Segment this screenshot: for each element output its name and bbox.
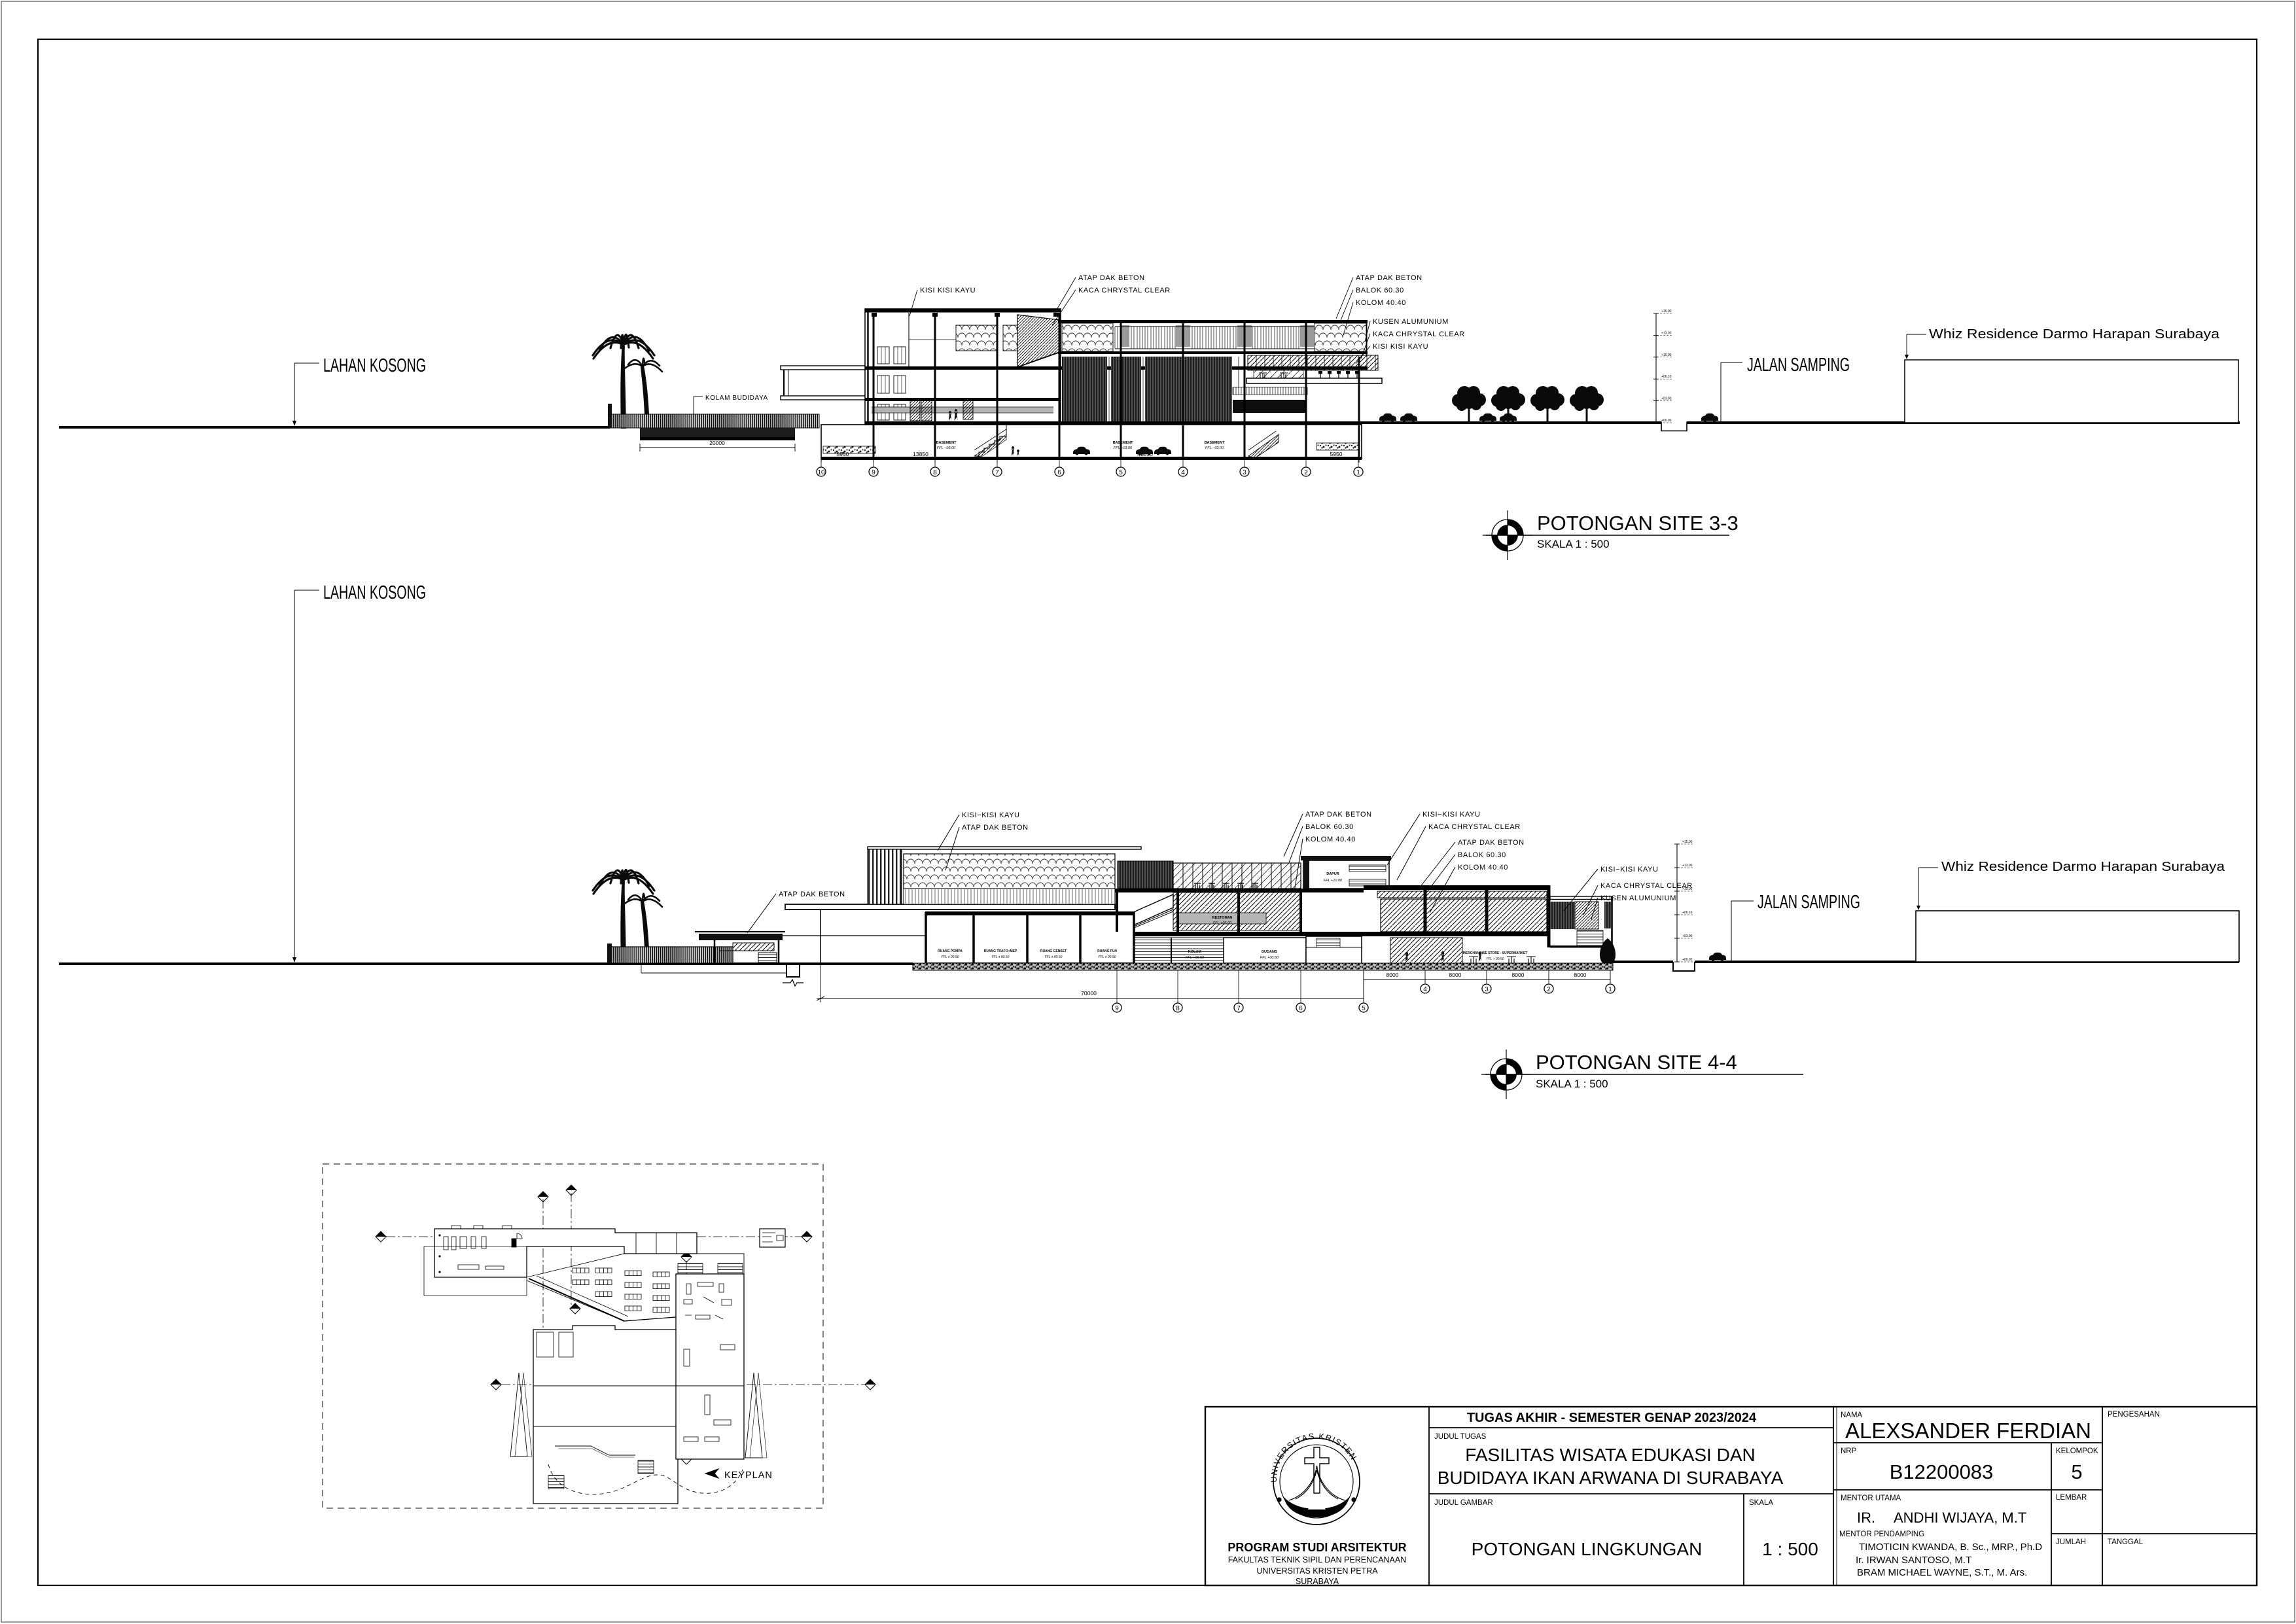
- svg-text:+10.00: +10.00: [1661, 353, 1672, 357]
- svg-text:UNIVERSITAS KRISTEN PETRA: UNIVERSITAS KRISTEN PETRA: [1256, 1566, 1378, 1576]
- svg-text:B12200083: B12200083: [1890, 1460, 1994, 1483]
- svg-text:BASEMENT: BASEMENT: [936, 441, 957, 445]
- svg-text:KISI−KISI KAYU: KISI−KISI KAYU: [962, 811, 1020, 819]
- svg-text:8000: 8000: [1574, 972, 1587, 978]
- svg-text:KACA CHRYSTAL CLEAR: KACA CHRYSTAL CLEAR: [1428, 823, 1521, 831]
- svg-text:+06.10: +06.10: [1661, 375, 1672, 379]
- svg-text:FFL ± 00.50: FFL ± 00.50: [1099, 955, 1116, 959]
- svg-text:Ir. IRWAN SANTOSO, M.T: Ir. IRWAN SANTOSO, M.T: [1856, 1555, 1971, 1566]
- svg-text:5950: 5950: [837, 451, 849, 457]
- svg-text:RUANG GENSET: RUANG GENSET: [1040, 949, 1067, 953]
- svg-text:SKALA 1 : 500: SKALA 1 : 500: [1536, 1078, 1608, 1090]
- svg-text:5: 5: [1362, 1005, 1366, 1012]
- svg-text:FFL ± 00.50: FFL ± 00.50: [992, 955, 1010, 959]
- svg-text:MERCHANDISE STORE - SUPERMARKE: MERCHANDISE STORE - SUPERMARKET: [1463, 951, 1528, 955]
- svg-text:8000: 8000: [1512, 972, 1525, 978]
- svg-text:Whiz Residence Darmo Harapan S: Whiz Residence Darmo Harapan Surabaya: [1941, 860, 2225, 874]
- svg-text:BUDIDAYA IKAN ARWANA DI SURABA: BUDIDAYA IKAN ARWANA DI SURABAYA: [1438, 1468, 1784, 1488]
- svg-text:MENTOR UTAMA: MENTOR UTAMA: [1841, 1494, 1901, 1502]
- svg-text:5950: 5950: [1330, 451, 1343, 457]
- svg-text:PENGESAHAN: PENGESAHAN: [2108, 1411, 2160, 1419]
- svg-text:+00.00: +00.00: [1682, 958, 1693, 962]
- svg-text:8: 8: [933, 469, 937, 476]
- svg-text:6: 6: [1057, 469, 1061, 476]
- svg-text:PROGRAM STUDI ARSITEKTUR: PROGRAM STUDI ARSITEKTUR: [1227, 1541, 1406, 1554]
- svg-text:FFL −03.00: FFL −03.00: [1205, 446, 1224, 450]
- svg-text:LAHAN KOSONG: LAHAN KOSONG: [323, 582, 426, 603]
- svg-text:4: 4: [1181, 469, 1185, 476]
- svg-text:KOLOM 40.40: KOLOM 40.40: [1305, 836, 1356, 843]
- svg-text:LAHAN KOSONG: LAHAN KOSONG: [323, 355, 426, 376]
- svg-text:+10.00: +10.00: [1682, 887, 1693, 891]
- svg-text:BASEMENT: BASEMENT: [1113, 441, 1134, 445]
- svg-text:JUMLAH: JUMLAH: [2056, 1538, 2086, 1546]
- svg-text:8000: 8000: [1449, 972, 1462, 978]
- svg-text:KELOMPOK: KELOMPOK: [2056, 1447, 2098, 1455]
- svg-text:FFL +05.00: FFL +05.00: [1213, 921, 1232, 925]
- svg-text:4: 4: [1423, 986, 1427, 993]
- svg-text:RESTORAN: RESTORAN: [1212, 916, 1233, 920]
- svg-text:BALOK 60.30: BALOK 60.30: [1305, 823, 1354, 831]
- svg-text:+00.00: +00.00: [1661, 419, 1672, 423]
- svg-text:10: 10: [817, 469, 825, 476]
- svg-text:1: 1: [1356, 469, 1360, 476]
- svg-text:JUDUL GAMBAR: JUDUL GAMBAR: [1434, 1499, 1493, 1507]
- svg-text:DAPUR: DAPUR: [1326, 872, 1339, 876]
- svg-text:+15.00: +15.00: [1682, 840, 1693, 844]
- svg-text:+06.10: +06.10: [1682, 911, 1693, 915]
- svg-text:ATAP DAK BETON: ATAP DAK BETON: [1305, 811, 1372, 819]
- svg-text:LEMBAR: LEMBAR: [2056, 1494, 2087, 1502]
- svg-text:FFL +00.50: FFL +00.50: [1260, 956, 1279, 960]
- svg-text:SURABAYA: SURABAYA: [1296, 1577, 1339, 1586]
- svg-text:KEYPLAN: KEYPLAN: [724, 1470, 773, 1481]
- svg-text:MENTOR PENDAMPING: MENTOR PENDAMPING: [1839, 1530, 1924, 1538]
- svg-text:+13.00: +13.00: [1682, 864, 1693, 868]
- svg-text:20000: 20000: [709, 440, 725, 446]
- svg-text:1 : 500: 1 : 500: [1762, 1539, 1818, 1559]
- svg-text:KISI−KISI KAYU: KISI−KISI KAYU: [1600, 866, 1659, 874]
- svg-text:9: 9: [872, 469, 875, 476]
- svg-text:ATAP DAK BETON: ATAP DAK BETON: [779, 891, 845, 898]
- svg-text:FFL −03.00: FFL −03.00: [937, 446, 956, 450]
- svg-text:KISI KISI KAYU: KISI KISI KAYU: [1373, 343, 1428, 351]
- svg-text:FASILITAS WISATA EDUKASI DAN: FASILITAS WISATA EDUKASI DAN: [1465, 1445, 1755, 1465]
- svg-text:KISI KISI KAYU: KISI KISI KAYU: [920, 287, 976, 294]
- svg-text:5: 5: [1119, 469, 1123, 476]
- svg-text:7: 7: [1237, 1005, 1241, 1012]
- svg-text:FFL + 00.50: FFL + 00.50: [1486, 957, 1504, 961]
- svg-text:13850: 13850: [913, 451, 928, 457]
- svg-text:ATAP DAK BETON: ATAP DAK BETON: [1356, 274, 1422, 282]
- svg-text:RUANG TRAFO+MEP: RUANG TRAFO+MEP: [984, 949, 1017, 953]
- svg-text:ANDHI WIJAYA, M.T: ANDHI WIJAYA, M.T: [1894, 1509, 2026, 1526]
- svg-text:IR.: IR.: [1857, 1509, 1875, 1526]
- svg-text:FFL ± 00.50: FFL ± 00.50: [1045, 955, 1063, 959]
- svg-text:FFL ± 00.50: FFL ± 00.50: [942, 955, 959, 959]
- svg-text:KACA CHRYSTAL CLEAR: KACA CHRYSTAL CLEAR: [1078, 287, 1171, 294]
- svg-text:RUANG POMPA: RUANG POMPA: [938, 949, 963, 953]
- svg-text:2: 2: [1547, 986, 1551, 993]
- svg-text:ATAP DAK BETON: ATAP DAK BETON: [962, 824, 1029, 832]
- svg-text:KACA CHRYSTAL CLEAR: KACA CHRYSTAL CLEAR: [1373, 330, 1465, 338]
- svg-text:9: 9: [1115, 1005, 1119, 1012]
- svg-text:FFL +10.00: FFL +10.00: [1324, 879, 1343, 883]
- svg-text:+13.00: +13.00: [1661, 331, 1672, 335]
- svg-text:+15.00: +15.00: [1661, 309, 1672, 313]
- svg-text:5: 5: [2071, 1460, 2082, 1483]
- svg-text:ATAP DAK BETON: ATAP DAK BETON: [1078, 274, 1145, 282]
- svg-text:POTONGAN LINGKUNGAN: POTONGAN LINGKUNGAN: [1472, 1539, 1703, 1559]
- svg-text:KISI−KISI KAYU: KISI−KISI KAYU: [1422, 811, 1481, 819]
- svg-text:KOLAM: KOLAM: [1188, 950, 1202, 954]
- svg-text:1: 1: [1608, 986, 1612, 993]
- svg-text:KOLAM BUDIDAYA: KOLAM BUDIDAYA: [705, 395, 768, 402]
- svg-text:RUANG PLN: RUANG PLN: [1097, 949, 1117, 953]
- svg-text:8: 8: [1176, 1005, 1180, 1012]
- svg-text:BASEMENT: BASEMENT: [1205, 441, 1226, 445]
- svg-text:7: 7: [995, 469, 999, 476]
- svg-text:TIMOTICIN KWANDA, B. Sc., MRP.: TIMOTICIN KWANDA, B. Sc., MRP., Ph.D: [1859, 1542, 2042, 1553]
- svg-text:POTONGAN SITE 4-4: POTONGAN SITE 4-4: [1536, 1051, 1737, 1074]
- svg-text:+03.00: +03.00: [1661, 397, 1672, 401]
- svg-text:FFL −03.00: FFL −03.00: [1114, 446, 1133, 450]
- svg-text:KOLOM 40.40: KOLOM 40.40: [1356, 299, 1406, 307]
- svg-text:TUGAS AKHIR - SEMESTER GENAP 2: TUGAS AKHIR - SEMESTER GENAP 2023/2024: [1467, 1411, 1757, 1425]
- svg-text:+03.00: +03.00: [1682, 934, 1693, 938]
- svg-text:JUDUL TUGAS: JUDUL TUGAS: [1434, 1433, 1487, 1441]
- svg-text:JALAN SAMPING: JALAN SAMPING: [1747, 355, 1850, 376]
- svg-text:TANGGAL: TANGGAL: [2108, 1538, 2144, 1546]
- svg-text:ALEXSANDER FERDIAN: ALEXSANDER FERDIAN: [1845, 1419, 2091, 1443]
- svg-text:BALOK 60.30: BALOK 60.30: [1356, 287, 1404, 294]
- svg-text:BRAM MICHAEL WAYNE, S.T., M. A: BRAM MICHAEL WAYNE, S.T., M. Ars.: [1857, 1567, 2027, 1578]
- svg-text:3: 3: [1243, 469, 1246, 476]
- svg-text:Whiz Residence Darmo Harapan S: Whiz Residence Darmo Harapan Surabaya: [1929, 327, 2220, 342]
- svg-text:SKALA 1 : 500: SKALA 1 : 500: [1537, 538, 1610, 550]
- svg-text:8000: 8000: [1386, 972, 1399, 978]
- svg-text:43850: 43850: [1137, 451, 1153, 457]
- svg-text:JALAN SAMPING: JALAN SAMPING: [1757, 892, 1860, 913]
- svg-text:70000: 70000: [1081, 990, 1097, 997]
- svg-text:POTONGAN SITE 3-3: POTONGAN SITE 3-3: [1537, 512, 1739, 535]
- svg-text:6: 6: [1299, 1005, 1303, 1012]
- svg-text:KACA CHRYSTAL CLEAR: KACA CHRYSTAL CLEAR: [1600, 882, 1693, 890]
- svg-text:FFL +00.50: FFL +00.50: [1186, 956, 1205, 960]
- svg-text:ATAP DAK BETON: ATAP DAK BETON: [1458, 839, 1525, 847]
- svg-text:NRP: NRP: [1841, 1447, 1857, 1455]
- svg-text:SKALA: SKALA: [1749, 1499, 1773, 1507]
- svg-text:KUSEN ALUMUNIUM: KUSEN ALUMUNIUM: [1600, 894, 1676, 902]
- svg-text:BALOK 60.30: BALOK 60.30: [1458, 851, 1506, 859]
- svg-text:KOLOM 40.40: KOLOM 40.40: [1458, 864, 1508, 872]
- svg-text:GUDANG: GUDANG: [1262, 950, 1277, 954]
- svg-text:2: 2: [1304, 469, 1308, 476]
- svg-text:KUSEN ALUMUNIUM: KUSEN ALUMUNIUM: [1373, 318, 1449, 326]
- svg-text:FAKULTAS TEKNIK SIPIL DAN PERE: FAKULTAS TEKNIK SIPIL DAN PERENCANAAN: [1228, 1555, 1407, 1564]
- svg-text:3: 3: [1485, 986, 1489, 993]
